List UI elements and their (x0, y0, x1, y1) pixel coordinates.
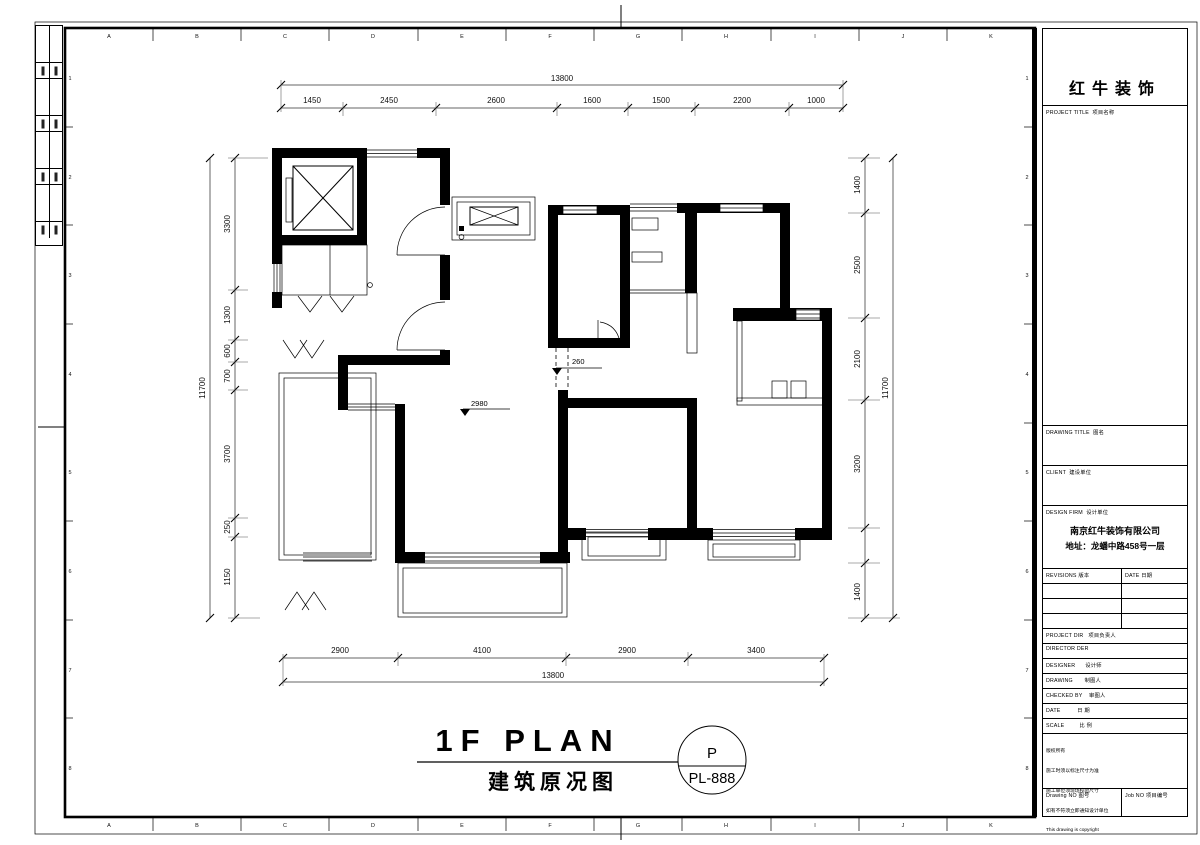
dressing-room (737, 321, 825, 405)
svg-text:2600: 2600 (487, 96, 505, 105)
copyright-notes: 版权所有 施工时须以标注尺寸为准 施工单位须现场校验尺寸 如有不符须立即通知设计… (1043, 734, 1187, 789)
svg-text:1600: 1600 (583, 96, 601, 105)
svg-text:1400: 1400 (853, 583, 862, 601)
svg-text:1500: 1500 (652, 96, 670, 105)
svg-text:D: D (371, 34, 375, 40)
svg-text:4100: 4100 (473, 646, 491, 655)
left-balcony (279, 373, 376, 560)
svg-text:A: A (107, 34, 111, 40)
svg-text:B: B (195, 823, 199, 829)
grid-letters-bottom: A B C D E F G H I J K (107, 818, 993, 831)
stairs (282, 245, 367, 312)
door-arcs (368, 207, 445, 350)
design-firm-cell: DESIGN FIRM 设计单位 南京红牛装饰有限公司 地址：龙蟠中路458号一… (1043, 506, 1187, 569)
svg-text:E: E (460, 34, 464, 40)
drawing-number-bubble: P PL-888 (678, 726, 746, 794)
svg-text:F: F (548, 823, 552, 829)
svg-text:G: G (636, 34, 640, 40)
revisions-header: REVISIONS 版本 DATE 日期 (1043, 569, 1187, 584)
svg-text:3: 3 (1025, 273, 1028, 279)
elevator-shaft (286, 166, 353, 230)
svg-text:A: A (107, 823, 111, 829)
svg-text:1: 1 (1025, 76, 1028, 82)
svg-text:F: F (548, 34, 552, 40)
svg-text:2500: 2500 (853, 256, 862, 274)
svg-text:11700: 11700 (881, 377, 890, 399)
svg-text:4: 4 (68, 372, 71, 378)
svg-text:260: 260 (572, 357, 585, 366)
svg-text:5: 5 (68, 470, 71, 476)
director-row: DIRECTOR DER (1043, 644, 1187, 659)
svg-text:2: 2 (1025, 175, 1028, 181)
svg-text:I: I (814, 823, 816, 829)
sheet-frame (35, 5, 1197, 840)
svg-text:8: 8 (1025, 766, 1028, 772)
svg-text:3700: 3700 (223, 445, 232, 463)
plan-title: 1F PLAN 建筑原况图 P PL-888 (417, 723, 746, 794)
svg-text:P: P (707, 745, 717, 762)
title-block: 红牛装饰 PROJECT TITLE 项目名称 DRAWING TITLE 图名… (1042, 28, 1188, 817)
drawing-canvas: A B C D E F G H I J K A B C D E F G H I … (0, 0, 1200, 845)
plan-title-sub: 建筑原况图 (488, 770, 618, 794)
date-row: DATE 日 期 (1043, 704, 1187, 719)
svg-text:11700: 11700 (198, 377, 207, 399)
svg-text:1150: 1150 (223, 568, 232, 586)
svg-text:3400: 3400 (747, 646, 765, 655)
company-name: 红牛装饰 (1069, 75, 1161, 99)
floor-plan: 260 2980 (272, 148, 832, 617)
dimension-top: 13800 1450 2450 2600 1600 1500 2200 1000 (277, 74, 847, 116)
svg-text:2450: 2450 (380, 96, 398, 105)
svg-text:3200: 3200 (853, 455, 862, 473)
svg-text:250: 250 (223, 520, 232, 534)
svg-text:2900: 2900 (331, 646, 349, 655)
svg-text:H: H (724, 823, 728, 829)
designer-row: DESIGNER 设计师 (1043, 659, 1187, 674)
firm-name: 南京红牛装饰有限公司 (1043, 524, 1187, 539)
client-cell: CLIENT 建设单位 (1043, 466, 1187, 506)
svg-text:8: 8 (68, 766, 71, 772)
dimension-right: 1400 2500 2100 3200 1400 11700 (848, 154, 900, 622)
svg-text:C: C (283, 823, 287, 829)
svg-text:2: 2 (68, 175, 71, 181)
svg-text:4: 4 (1025, 372, 1028, 378)
dimension-left: 11700 3300 1300 600 700 3700 250 1150 (198, 154, 268, 622)
svg-text:H: H (724, 34, 728, 40)
svg-text:13800: 13800 (542, 671, 565, 680)
svg-text:3300: 3300 (223, 215, 232, 233)
break-marks (283, 340, 326, 610)
svg-text:6: 6 (68, 569, 71, 575)
svg-text:K: K (989, 823, 993, 829)
grid-letters-top: A B C D E F G H I J K (107, 29, 993, 41)
svg-text:2100: 2100 (853, 350, 862, 368)
svg-text:J: J (902, 34, 905, 40)
svg-text:K: K (989, 34, 993, 40)
checked-by-row: CHECKED BY 审图人 (1043, 689, 1187, 704)
firm-address: 地址：龙蟠中路458号一层 (1043, 539, 1187, 554)
company-logo: 红牛装饰 (1043, 29, 1187, 106)
signature-strip (35, 25, 63, 246)
svg-text:J: J (902, 823, 905, 829)
svg-text:600: 600 (223, 344, 232, 358)
svg-text:G: G (636, 823, 640, 829)
svg-text:C: C (283, 34, 287, 40)
svg-text:700: 700 (223, 369, 232, 383)
svg-text:1: 1 (68, 76, 71, 82)
svg-text:E: E (460, 823, 464, 829)
svg-text:1000: 1000 (807, 96, 825, 105)
dimension-bottom: 2900 4100 2900 3400 13800 (279, 646, 828, 686)
plan-title-main: 1F PLAN (435, 723, 620, 758)
svg-text:D: D (371, 823, 375, 829)
svg-text:2900: 2900 (618, 646, 636, 655)
drawing-row: DRAWING 制图人 (1043, 674, 1187, 689)
drawing-title-cell: DRAWING TITLE 图名 (1043, 426, 1187, 466)
south-balcony (398, 554, 567, 617)
svg-text:3: 3 (68, 273, 71, 279)
svg-text:B: B (195, 34, 199, 40)
svg-text:2980: 2980 (471, 399, 488, 408)
svg-text:1300: 1300 (223, 306, 232, 324)
svg-text:13800: 13800 (551, 74, 574, 83)
bay-window-right (708, 540, 800, 560)
svg-text:6: 6 (1025, 569, 1028, 575)
svg-text:1400: 1400 (853, 176, 862, 194)
project-title-cell: PROJECT TITLE 项目名称 (1043, 106, 1187, 426)
svg-text:I: I (814, 34, 816, 40)
svg-text:7: 7 (1025, 668, 1028, 674)
project-dir-row: PROJECT DIR 项目负责人 (1043, 629, 1187, 644)
svg-text:2200: 2200 (733, 96, 751, 105)
svg-text:PL-888: PL-888 (689, 771, 736, 787)
drawing-sheet: A B C D E F G H I J K A B C D E F G H I … (0, 0, 1200, 845)
scale-row: SCALE 比 例 (1043, 719, 1187, 734)
svg-text:1450: 1450 (303, 96, 321, 105)
drawing-no-row: Drawing NO 图号 Job NO 项目编号 (1043, 789, 1187, 817)
svg-text:7: 7 (68, 668, 71, 674)
utility-balcony (452, 197, 535, 240)
svg-text:5: 5 (1025, 470, 1028, 476)
